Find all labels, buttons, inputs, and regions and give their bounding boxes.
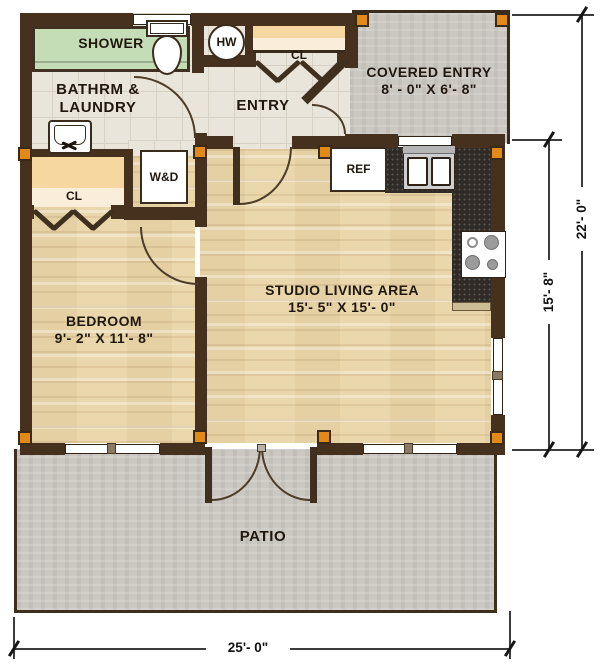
counter-end-cap [452,302,491,311]
wall-segment [247,53,256,67]
water-heater-label: HW [208,35,245,49]
covered-entry-edge [507,11,510,144]
dimension-extension-line [13,617,15,659]
post-marker [18,147,32,161]
wall-segment [207,136,233,149]
post-marker [193,145,207,159]
kitchen-counter-right [452,147,491,309]
kitchen-window [398,136,452,146]
wall-segment [345,134,398,148]
shower-label: SHOWER [41,35,181,52]
post-marker [193,430,207,444]
patio-door-leaf [310,447,317,503]
post-marker [18,431,32,445]
patio-door-leaf [205,447,212,503]
studio-label: STUDIO LIVING AREA 15'- 5" X 15'- 0" [242,282,442,316]
entry-label: ENTRY [203,97,323,115]
washer-dryer-label: W&D [140,170,188,184]
post-marker [317,430,331,444]
wall-segment [195,277,207,443]
covered-entry-label: COVERED ENTRY 8' - 0" X 6'- 8" [354,64,504,98]
overall-height-dimension: 22'- 0" [574,187,590,251]
patio-label: PATIO [203,528,323,546]
floor-plan: HW W&D REF SHOWER BATHRM & LAUNDRY CL EN… [0,0,602,672]
studio-door-leaf [233,147,240,205]
wall-segment [124,149,133,207]
dimension-extension-line [512,139,562,141]
covered-entry-edge [352,10,510,13]
wall-segment [317,443,363,455]
window-mullion [492,371,503,380]
post-marker [490,431,504,445]
post-marker [490,146,504,160]
wall-segment [191,13,358,26]
wall-segment [20,13,133,26]
wall-segment [20,13,32,455]
post-marker [495,13,509,27]
entry-closet-label: CL [283,48,315,62]
overall-width-dimension: 25'- 0" [206,640,290,656]
patio-door-center-mullion [257,444,266,452]
living-depth-dimension: 15'- 8" [541,260,557,324]
refrigerator-label: REF [330,162,387,176]
bedroom-closet-label: CL [58,189,90,203]
bathroom-label: BATHRM & LAUNDRY [28,81,168,117]
wall-segment [160,443,205,455]
window-mullion [107,443,116,454]
post-marker [355,13,369,27]
bedroom-label: BEDROOM 9'- 2" X 11'- 8" [24,313,184,347]
window-mullion [404,443,413,454]
